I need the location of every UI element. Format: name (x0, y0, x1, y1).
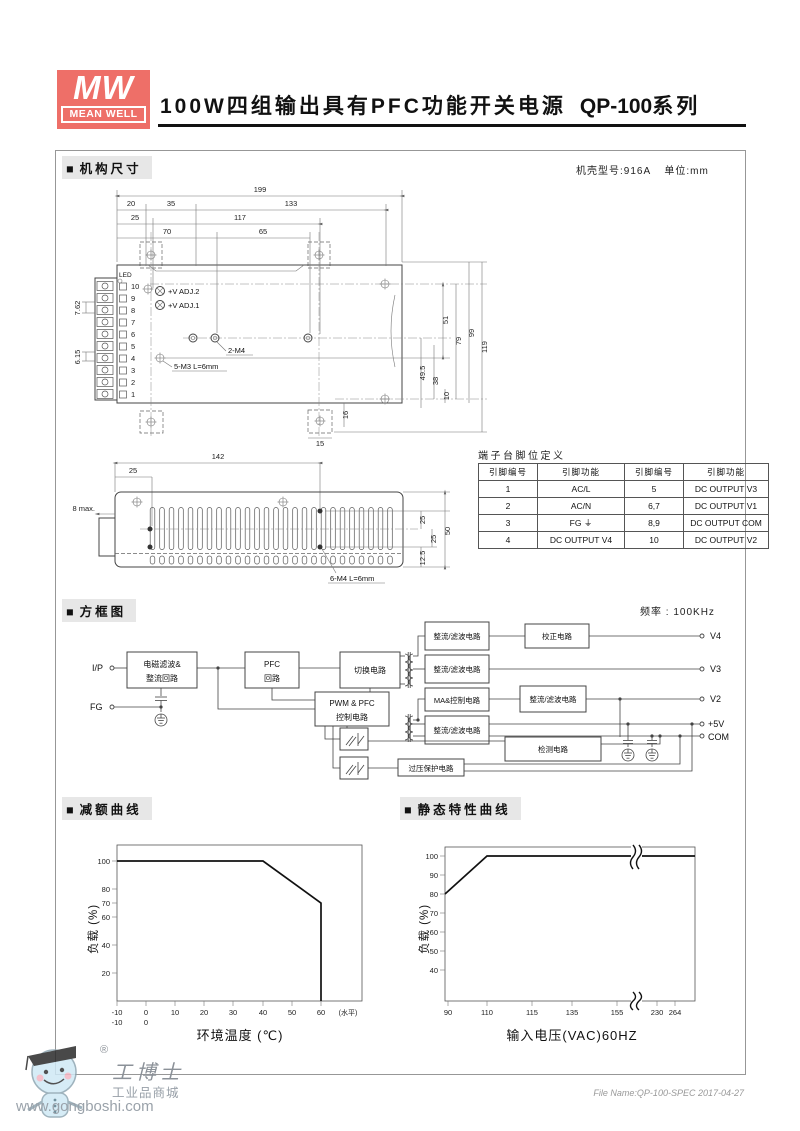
pfc-label-1: PFC (264, 660, 280, 669)
ground-symbol (622, 749, 634, 761)
datasheet-page: MW MEAN WELL 100W四组输出具有PFC功能开关电源QP-100系列… (0, 0, 800, 1131)
optocoupler-1 (340, 728, 368, 750)
pin-cell: AC/L (538, 481, 625, 498)
table-row: 2AC/N6,7DC OUTPUT V1 (479, 498, 769, 515)
v4-port (700, 634, 704, 638)
svg-text:-10: -10 (112, 1008, 123, 1017)
switch-label: 切换电路 (354, 665, 386, 675)
terminal-number: 8 (131, 306, 135, 315)
dim-20: 20 (127, 199, 135, 208)
derating-chart: 100 80 70 60 40 20 -10 0 10 20 30 40 50 … (55, 795, 400, 1050)
5v-port (700, 722, 704, 726)
pin-col-header: 引脚功能 (538, 464, 625, 481)
dim-15: 15 (316, 439, 324, 448)
terminal-number: 9 (131, 294, 135, 303)
axis-break-bottom (631, 992, 643, 1010)
vadj1-label: +V ADJ.1 (168, 301, 199, 310)
y-axis-label: 负载 (%) (417, 904, 431, 954)
fg-port (110, 705, 114, 709)
dim-49-5: 49.5 (418, 366, 427, 381)
svg-text:30: 30 (229, 1008, 237, 1017)
emi-filter-label-2: 整流回路 (146, 673, 178, 683)
svg-text:0: 0 (144, 1008, 148, 1017)
svg-text:100: 100 (97, 857, 110, 866)
m4-side-label: 6-M4 L=6mm (330, 574, 374, 583)
vadj2-pot (156, 287, 165, 296)
m4-label: 2-M4 (228, 346, 245, 355)
dim-199: 199 (254, 185, 267, 194)
dim-7-62: 7.62 (73, 301, 82, 316)
static-curve-line (445, 856, 695, 894)
plot-area (445, 847, 695, 1001)
dim-133: 133 (285, 199, 298, 208)
dim-8max: 8 max. (72, 504, 95, 513)
dim-6-15: 6.15 (73, 350, 82, 365)
svg-text:10: 10 (171, 1008, 179, 1017)
dim-51: 51 (441, 316, 450, 324)
v3-port-label: V3 (710, 664, 721, 674)
transformer-2 (405, 699, 425, 742)
svg-text:-10: -10 (112, 1018, 123, 1027)
ma-control-label: MA&控制电路 (434, 695, 481, 705)
svg-text:60: 60 (317, 1008, 325, 1017)
svg-text:80: 80 (430, 890, 438, 899)
logo-mw-text: MW (57, 70, 150, 106)
dim-25: 25 (131, 213, 139, 222)
pin-cell: DC OUTPUT V1 (684, 498, 769, 515)
led-label: LED (119, 272, 132, 279)
dim-79: 79 (454, 337, 463, 345)
ovp-label: 过压保护电路 (409, 763, 454, 773)
screw-hole (318, 509, 323, 514)
svg-text:50: 50 (288, 1008, 296, 1017)
svg-text:40: 40 (259, 1008, 267, 1017)
dim-s25: 25 (129, 466, 137, 475)
v2-port (700, 697, 704, 701)
rectifier-filter-label: 整流/滤波电路 (433, 664, 481, 674)
com-port-label: COM (708, 732, 729, 742)
svg-text:264: 264 (669, 1008, 682, 1017)
watermark-brand: 工博士 (112, 1056, 184, 1085)
pwm-label-1: PWM & PFC (329, 699, 375, 708)
dim-38: 38 (431, 377, 440, 385)
watermark-url: www.gongboshi.com (16, 1098, 154, 1115)
dim-117: 117 (234, 213, 246, 222)
v3-port (700, 667, 704, 671)
m3-label: 5-M3 L=6mm (174, 362, 218, 371)
title-underline (158, 124, 746, 127)
title-suffix: 系列 (652, 95, 700, 118)
title-series: QP-100 (580, 95, 652, 118)
dim-50: 50 (443, 527, 452, 535)
svg-text:70: 70 (102, 899, 110, 908)
dim-65: 65 (259, 227, 267, 236)
ip-port-label: I/P (92, 663, 103, 673)
pin-cell: 5 (625, 481, 684, 498)
pin-table: 引脚编号 引脚功能 引脚编号 引脚功能 1AC/L5DC OUTPUT V3 2… (478, 463, 769, 549)
pin-cell: 2 (479, 498, 538, 515)
pin-cell: DC OUTPUT V3 (684, 481, 769, 498)
pwm-label-2: 控制电路 (336, 712, 368, 722)
logo-name-text: MEAN WELL (61, 106, 146, 123)
5v-port-label: +5V (708, 719, 724, 729)
x-axis-ticks: 90 110 115 135 155 230 264 (444, 1001, 681, 1017)
pin-cell: FG ⏚ (538, 515, 625, 532)
terminal-number: 10 (131, 282, 139, 291)
pin-cell: DC OUTPUT V4 (538, 532, 625, 549)
svg-text:40: 40 (102, 941, 110, 950)
dim-s25a: 25 (418, 516, 427, 524)
dim-12-5: 12.5 (418, 551, 427, 566)
pin-cell: 1 (479, 481, 538, 498)
axis-break-top (631, 843, 643, 871)
dim-16: 16 (341, 411, 350, 419)
plot-area (117, 845, 362, 1001)
optocoupler-2 (340, 757, 368, 779)
vadj1-pot (156, 301, 165, 310)
title-main: 100W四组输出具有PFC功能开关电源 (160, 95, 566, 118)
correction-label: 校正电路 (542, 631, 572, 641)
svg-text:230: 230 (651, 1008, 664, 1017)
rectifier-filter-label: 整流/滤波电路 (529, 694, 577, 704)
v2-port-label: V2 (710, 694, 721, 704)
mounting-brackets (140, 242, 332, 433)
y-axis-ticks: 100 80 70 60 40 20 (97, 857, 117, 978)
x-note: (水平) (339, 1008, 358, 1017)
pin-cell: AC/N (538, 498, 625, 515)
pin-table-header-row: 引脚编号 引脚功能 引脚编号 引脚功能 (479, 464, 769, 481)
dim-35: 35 (167, 199, 175, 208)
svg-text:135: 135 (566, 1008, 579, 1017)
svg-text:80: 80 (102, 885, 110, 894)
page-title: 100W四组输出具有PFC功能开关电源QP-100系列 (160, 90, 745, 120)
detection-label: 检测电路 (538, 744, 568, 754)
ground-symbol (646, 749, 658, 761)
connector (99, 518, 115, 556)
pin-cell: 3 (479, 515, 538, 532)
pin-table-title: 端子台脚位定义 (478, 447, 566, 462)
terminal-block: 10 9 8 7 6 5 4 3 2 1 (95, 278, 139, 400)
dim-142: 142 (212, 452, 225, 461)
derating-curve-line (117, 861, 321, 1001)
y-axis-label: 负载 (%) (86, 904, 100, 954)
svg-text:115: 115 (526, 1008, 538, 1017)
terminal-number: 2 (131, 378, 135, 387)
table-row: 3FG ⏚8,9DC OUTPUT COM (479, 515, 769, 532)
terminal-number: 3 (131, 366, 135, 375)
static-chart: 100 90 80 70 60 50 40 90 110 115 135 155… (400, 795, 745, 1050)
emi-filter-label-1: 电磁滤波& (143, 659, 181, 669)
dim-10: 10 (442, 392, 451, 400)
svg-text:60: 60 (102, 913, 110, 922)
meanwell-logo: MW MEAN WELL (57, 70, 150, 129)
dim-99: 99 (467, 329, 476, 337)
pin-cell: 8,9 (625, 515, 684, 532)
table-row: 4DC OUTPUT V410DC OUTPUT V2 (479, 532, 769, 549)
pin-col-header: 引脚功能 (684, 464, 769, 481)
table-row: 1AC/L5DC OUTPUT V3 (479, 481, 769, 498)
x-axis-label: 输入电压(VAC)60HZ (506, 1028, 637, 1043)
svg-text:100: 100 (425, 852, 438, 861)
pin-cell: DC OUTPUT V2 (684, 532, 769, 549)
dimension-lines: 199 20 35 133 25 117 70 65 5 (73, 185, 489, 448)
file-note: File Name:QP-100-SPEC 2017-04-27 (430, 1088, 744, 1098)
dim-70: 70 (163, 227, 171, 236)
block-diagram: I/P FG 电磁滤波& 整流回路 PFC 回路 切 (55, 595, 745, 800)
transformer (400, 636, 425, 688)
registered-mark: ® (100, 1044, 108, 1056)
screw-hole (148, 527, 153, 532)
svg-text:20: 20 (102, 969, 110, 978)
svg-text:90: 90 (430, 871, 438, 880)
terminal-number: 4 (131, 354, 135, 363)
pin-cell: DC OUTPUT COM (684, 515, 769, 532)
top-view: 10 9 8 7 6 5 4 3 2 1 LED +V ADJ.2 +V ADJ… (73, 185, 489, 448)
dim-s25b: 25 (429, 535, 438, 543)
svg-text:90: 90 (444, 1008, 452, 1017)
pin-cell: 4 (479, 532, 538, 549)
vent-slots-bottom (148, 555, 395, 566)
rectifier-filter-label: 整流/滤波电路 (433, 631, 481, 641)
ip-port (110, 666, 114, 670)
pin-col-header: 引脚编号 (625, 464, 684, 481)
dim-119: 119 (480, 341, 489, 353)
pfc-label-2: 回路 (264, 673, 280, 683)
x-axis-ticks: -10 0 10 20 30 40 50 60 -10 0 (水平) (112, 1001, 358, 1027)
rectifier-filter-label: 整流/滤波电路 (433, 725, 481, 735)
screw-hole (318, 545, 323, 550)
fg-port-label: FG (90, 702, 103, 712)
com-port (700, 734, 704, 738)
side-view: 142 25 8 max. 6-M4 L=6mm (72, 452, 452, 583)
screw-hole (148, 545, 153, 550)
svg-text:0: 0 (144, 1018, 148, 1027)
vadj2-label: +V ADJ.2 (168, 287, 199, 296)
terminal-number: 1 (131, 390, 135, 399)
svg-text:40: 40 (430, 966, 438, 975)
ground-symbol (155, 714, 167, 726)
v4-port-label: V4 (710, 631, 721, 641)
pin-col-header: 引脚编号 (479, 464, 538, 481)
svg-text:20: 20 (200, 1008, 208, 1017)
svg-text:110: 110 (481, 1008, 493, 1017)
x-axis-label: 环境温度 (℃) (197, 1028, 284, 1043)
pin-cell: 10 (625, 532, 684, 549)
chassis-body (117, 265, 402, 403)
terminal-number: 5 (131, 342, 135, 351)
terminal-number: 7 (131, 318, 135, 327)
terminal-number: 6 (131, 330, 135, 339)
pin-cell: 6,7 (625, 498, 684, 515)
svg-text:155: 155 (611, 1008, 624, 1017)
